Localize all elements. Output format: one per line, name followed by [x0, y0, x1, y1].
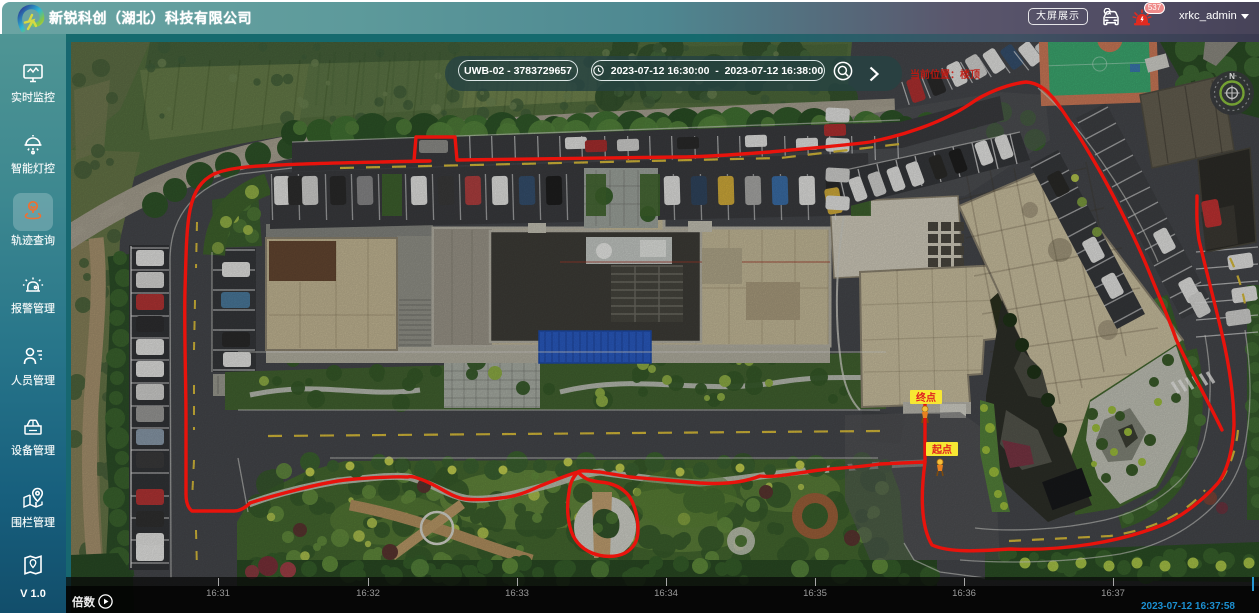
svg-text:当前位置：楼顶: 当前位置：楼顶: [910, 68, 980, 81]
svg-text:终点: 终点: [916, 391, 936, 404]
svg-text:起点: 起点: [931, 443, 952, 456]
